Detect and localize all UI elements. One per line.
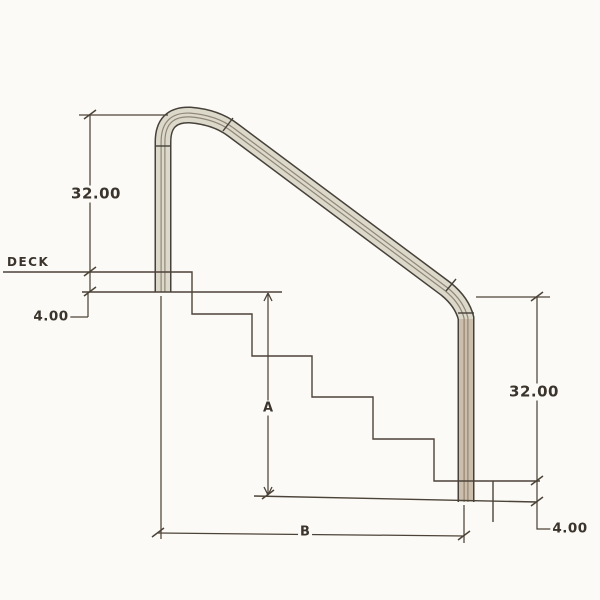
handrail-outline: [163, 115, 466, 502]
right-rail-height-dim: 32.00: [507, 384, 561, 401]
right-anchor-depth-dim: 4.00: [550, 521, 589, 537]
floor-line: [254, 496, 537, 502]
stair-rail-drawing: [0, 0, 600, 600]
handrail-fill: [163, 115, 466, 502]
left-rail-height-dim: 32.00: [69, 186, 123, 203]
handrail-seam-band: [163, 115, 466, 502]
left-anchor-depth-dim: 4.00: [31, 309, 70, 325]
dim-b-label: B: [298, 525, 312, 540]
deck-label: DECK: [7, 256, 49, 268]
diagram-canvas: DECK 32.00 4.00 A 32.00 4.00 B: [0, 0, 600, 600]
handrail-seam-gap: [163, 115, 466, 502]
handrail: [155, 115, 474, 502]
dim-a-label: A: [261, 401, 275, 416]
